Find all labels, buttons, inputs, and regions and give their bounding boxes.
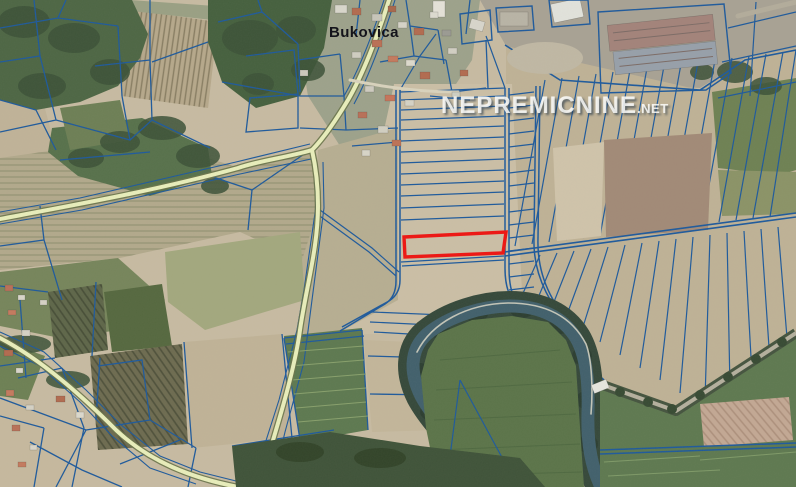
watermark: NEPREMICNINE.NET bbox=[441, 94, 669, 118]
photo-grain-overlay bbox=[0, 0, 796, 487]
watermark-main-text: NEPREMICNINE bbox=[441, 92, 637, 119]
watermark-suffix-text: .NET bbox=[637, 101, 669, 116]
aerial-map-image bbox=[0, 0, 796, 487]
place-label: Bukovica bbox=[329, 25, 399, 40]
map-canvas[interactable]: Bukovica NEPREMICNINE.NET bbox=[0, 0, 796, 487]
